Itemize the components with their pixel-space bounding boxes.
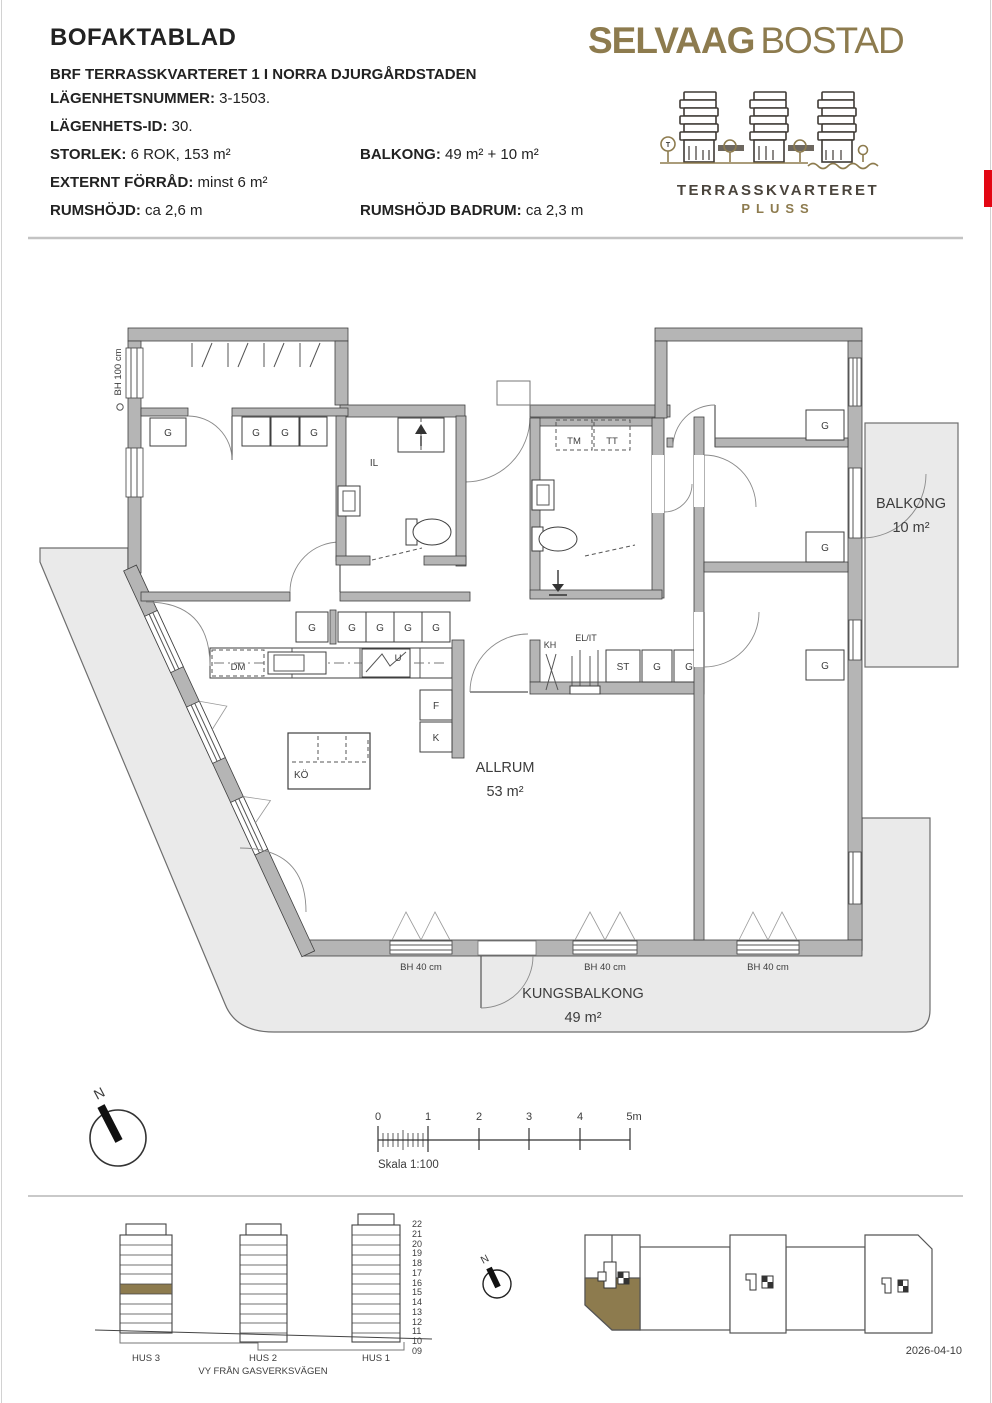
fridge-label: K bbox=[433, 733, 440, 744]
elit-label: EL/IT bbox=[575, 633, 597, 643]
field-value: 30. bbox=[172, 118, 193, 135]
elevation-diagram: 22 21 20 19 18 17 16 15 14 13 12 11 10 0… bbox=[95, 1214, 432, 1377]
kh-label: KH bbox=[544, 640, 557, 650]
hus2-label: HUS 2 bbox=[249, 1353, 277, 1364]
dryer-label: TT bbox=[606, 436, 618, 447]
wardrobe-label: G bbox=[252, 428, 260, 439]
bh40-label: BH 40 cm bbox=[584, 962, 626, 973]
wardrobe-label: G bbox=[281, 428, 289, 439]
field-label: LÄGENHETSNUMMER: bbox=[50, 90, 215, 107]
project-name: TERRASSKVARTERET bbox=[588, 182, 968, 199]
floor-number: 22 bbox=[412, 1219, 422, 1229]
floor-number: 14 bbox=[412, 1297, 422, 1307]
field-label: RUMSHÖJD: bbox=[50, 202, 141, 219]
field-label: BALKONG: bbox=[360, 146, 441, 163]
project-subtitle: BRF TERRASSKVARTERET 1 I NORRA DJURGÅRDS… bbox=[50, 66, 476, 83]
elevation-caption: VY FRÅN GASVERKSVÄGEN bbox=[198, 1366, 327, 1377]
brand-wordmark: SELVAAGBOSTAD bbox=[588, 22, 968, 60]
oven-label: U bbox=[395, 653, 402, 664]
floor-number: 21 bbox=[412, 1229, 422, 1239]
brand-bostad: BOSTAD bbox=[760, 20, 903, 61]
bh40-label: BH 40 cm bbox=[400, 962, 442, 973]
towers-illustration-icon: T bbox=[660, 84, 890, 180]
floor-number: 13 bbox=[412, 1307, 422, 1317]
header: BOFAKTABLAD BRF TERRASSKVARTERET 1 I NOR… bbox=[0, 0, 992, 236]
field-apartment-number: LÄGENHETSNUMMER: 3-1503. bbox=[50, 90, 270, 107]
field-value: ca 2,3 m bbox=[526, 202, 584, 219]
balkong-area: 10 m² bbox=[892, 520, 929, 536]
wardrobe-label: G bbox=[348, 623, 356, 634]
floorplan-canvas: G G G G BH 100 cm bbox=[0, 236, 992, 1403]
scale-bar: 0 1 2 3 4 5m Skala 1:100 bbox=[375, 1111, 642, 1171]
field-value: ca 2,6 m bbox=[145, 202, 203, 219]
field-storage: EXTERNT FÖRRÅD: minst 6 m² bbox=[50, 174, 268, 191]
wardrobe-label: G bbox=[164, 428, 172, 439]
washer-label: TM bbox=[567, 436, 581, 447]
kungsbalkong-area: 49 m² bbox=[564, 1010, 601, 1026]
il-label: IL bbox=[370, 458, 379, 469]
kungsbalkong-label: KUNGSBALKONG bbox=[522, 986, 644, 1002]
balkong-label: BALKONG bbox=[876, 496, 946, 512]
project-name-suffix: PLUSS bbox=[588, 201, 968, 216]
field-label: RUMSHÖJD BADRUM: bbox=[360, 202, 522, 219]
page-title: BOFAKTABLAD bbox=[50, 24, 236, 52]
wardrobe-label: G bbox=[404, 623, 412, 634]
compass-needle-icon bbox=[489, 1268, 498, 1287]
field-value: 6 ROK, 153 m² bbox=[131, 146, 231, 163]
freezer-label: F bbox=[433, 701, 439, 712]
wardrobe-label: G bbox=[821, 543, 829, 554]
bofaktablad-page: BOFAKTABLAD BRF TERRASSKVARTERET 1 I NOR… bbox=[0, 0, 992, 1403]
svg-text:T: T bbox=[666, 142, 671, 149]
stove-icon bbox=[362, 649, 410, 677]
wardrobe-label: G bbox=[432, 623, 440, 634]
scale-tick: 0 bbox=[375, 1111, 381, 1123]
wardrobe-label: G bbox=[821, 421, 829, 432]
floor-number: 15 bbox=[412, 1287, 422, 1297]
allrum-label: ALLRUM bbox=[476, 760, 535, 776]
site-plan bbox=[585, 1235, 932, 1333]
bh40-label: BH 40 cm bbox=[747, 962, 789, 973]
hus1-label: HUS 1 bbox=[362, 1353, 390, 1364]
allrum-area: 53 m² bbox=[486, 784, 523, 800]
scale-tick: 2 bbox=[476, 1111, 482, 1123]
bh100-label: BH 100 cm bbox=[113, 348, 124, 395]
field-ceiling-bathroom: RUMSHÖJD BADRUM: ca 2,3 m bbox=[360, 202, 583, 219]
hus3-label: HUS 3 bbox=[132, 1353, 160, 1364]
scale-tick: 4 bbox=[577, 1111, 583, 1123]
compass-n-label: N bbox=[479, 1252, 491, 1266]
compass-small: N bbox=[479, 1252, 511, 1298]
vent-icon bbox=[117, 404, 123, 410]
scale-tick: 1 bbox=[425, 1111, 431, 1123]
balkong-10-area bbox=[865, 423, 958, 667]
floor-number: 19 bbox=[412, 1248, 422, 1258]
wardrobe-label: G bbox=[653, 662, 661, 673]
scale-tick: 5m bbox=[626, 1111, 641, 1123]
dm-label: DM bbox=[231, 662, 246, 673]
field-apartment-id: LÄGENHETS-ID: 30. bbox=[50, 118, 193, 135]
wardrobe-label: G bbox=[308, 623, 316, 634]
kitchen-island: KÖ bbox=[288, 733, 370, 789]
floor-number: 10 bbox=[412, 1336, 422, 1346]
field-label: LÄGENHETS-ID: bbox=[50, 118, 168, 135]
field-value: 3-1503. bbox=[219, 90, 270, 107]
field-label: STORLEK: bbox=[50, 146, 126, 163]
field-label: EXTERNT FÖRRÅD: bbox=[50, 174, 193, 191]
st-label: ST bbox=[617, 662, 630, 673]
brand-selvaag: SELVAAG bbox=[588, 20, 754, 61]
wardrobe-label: G bbox=[376, 623, 384, 634]
floor-number: 18 bbox=[412, 1258, 422, 1268]
compass-main: N bbox=[90, 1084, 146, 1166]
document-date: 2026-04-10 bbox=[906, 1345, 962, 1357]
floor-number: 17 bbox=[412, 1268, 422, 1278]
scale-tick: 3 bbox=[526, 1111, 532, 1123]
scale-caption: Skala 1:100 bbox=[378, 1159, 439, 1171]
field-value: 49 m² + 10 m² bbox=[445, 146, 539, 163]
floor-number: 11 bbox=[412, 1326, 421, 1336]
field-value: minst 6 m² bbox=[198, 174, 268, 191]
floor-number: 09 bbox=[412, 1346, 422, 1356]
island-label: KÖ bbox=[294, 769, 309, 781]
wardrobe-label: G bbox=[310, 428, 318, 439]
wardrobe-label: G bbox=[821, 661, 829, 672]
highlighted-floor bbox=[121, 1284, 172, 1294]
compass-n-label: N bbox=[91, 1084, 107, 1103]
red-edge-tab bbox=[984, 170, 992, 207]
wardrobe-label: G bbox=[685, 662, 693, 673]
selvaag-logo: SELVAAGBOSTAD bbox=[588, 22, 968, 222]
field-balcony: BALKONG: 49 m² + 10 m² bbox=[360, 146, 539, 163]
